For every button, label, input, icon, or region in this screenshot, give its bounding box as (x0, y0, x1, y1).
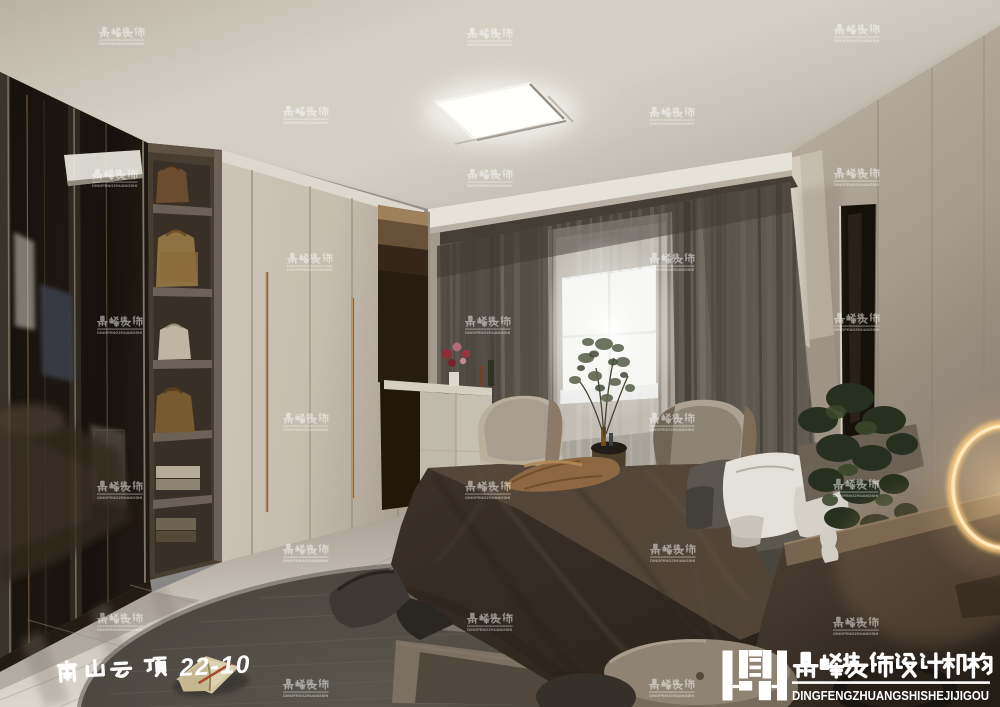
svg-text:22-10: 22-10 (178, 650, 252, 682)
svg-text:DINGFENGZHUANGSHISHEJIJIGOU: DINGFENGZHUANGSHISHEJIJIGOU (792, 688, 989, 703)
